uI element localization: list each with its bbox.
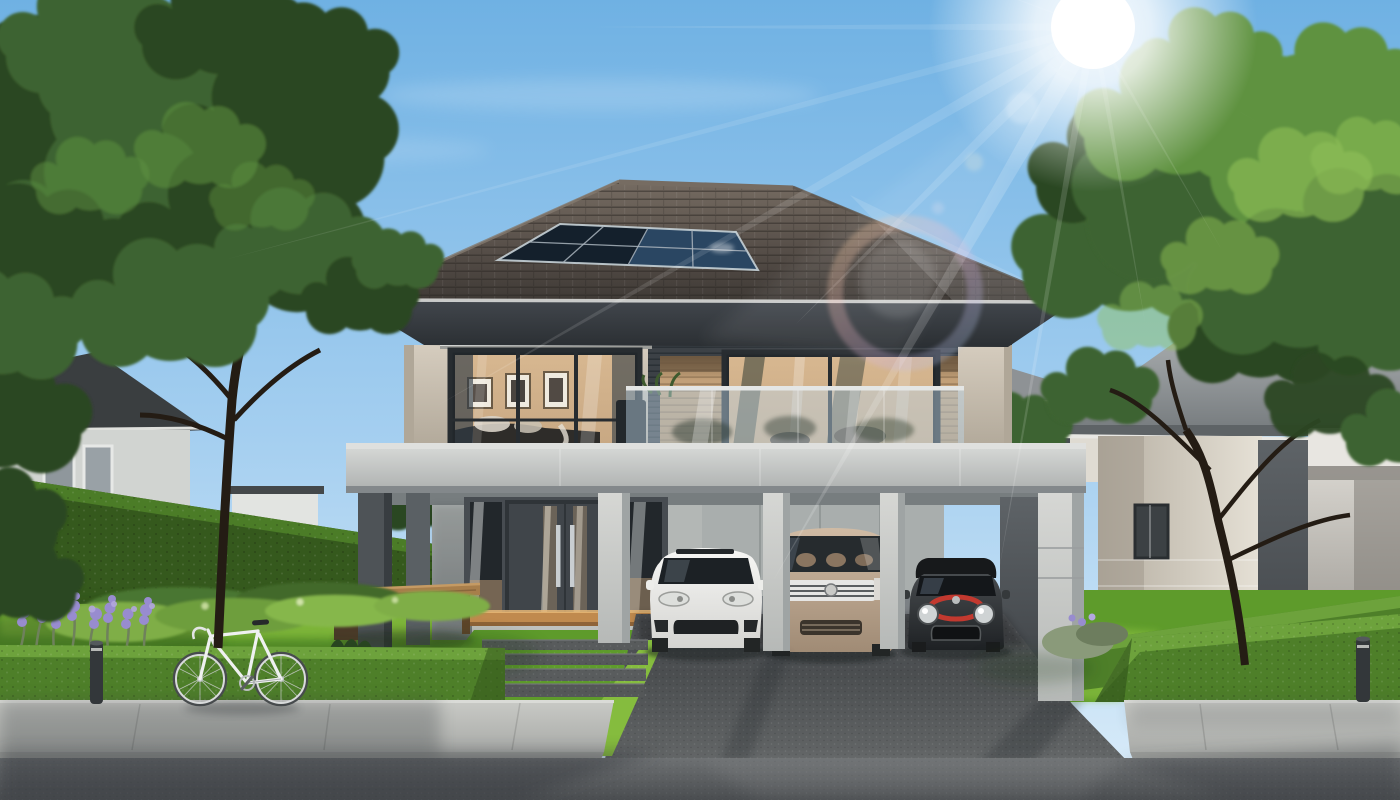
cloud-wisp — [380, 79, 820, 111]
gutter-line — [352, 300, 1073, 302]
second-floor — [404, 332, 1012, 455]
van-air-intake — [800, 620, 862, 635]
mini-headlight — [918, 604, 938, 624]
right-cream-pier — [958, 345, 1012, 453]
white-suv — [646, 548, 766, 652]
mini-emblem — [952, 596, 960, 604]
suv-sunroof — [676, 549, 734, 554]
suv-grille — [674, 620, 739, 634]
suv-headlight — [659, 592, 689, 606]
mini-headlight — [974, 604, 994, 624]
door-handle — [570, 525, 575, 587]
scene-canvas — [0, 0, 1400, 800]
black-mini-hatchback — [902, 558, 1010, 652]
mini-grille — [932, 626, 981, 640]
carport-slab — [346, 443, 1086, 493]
van-emblem — [825, 584, 837, 596]
suv-headlight — [723, 592, 753, 606]
suv-mirror — [646, 580, 654, 590]
bollard-left — [90, 642, 103, 704]
rendering-scene: Sunny architectural rendering of a moder… — [0, 0, 1400, 800]
porch-column-dark — [406, 493, 430, 645]
door-handle — [556, 525, 561, 587]
right-house-window — [1135, 505, 1168, 558]
balustrade-top-rail — [626, 386, 964, 391]
